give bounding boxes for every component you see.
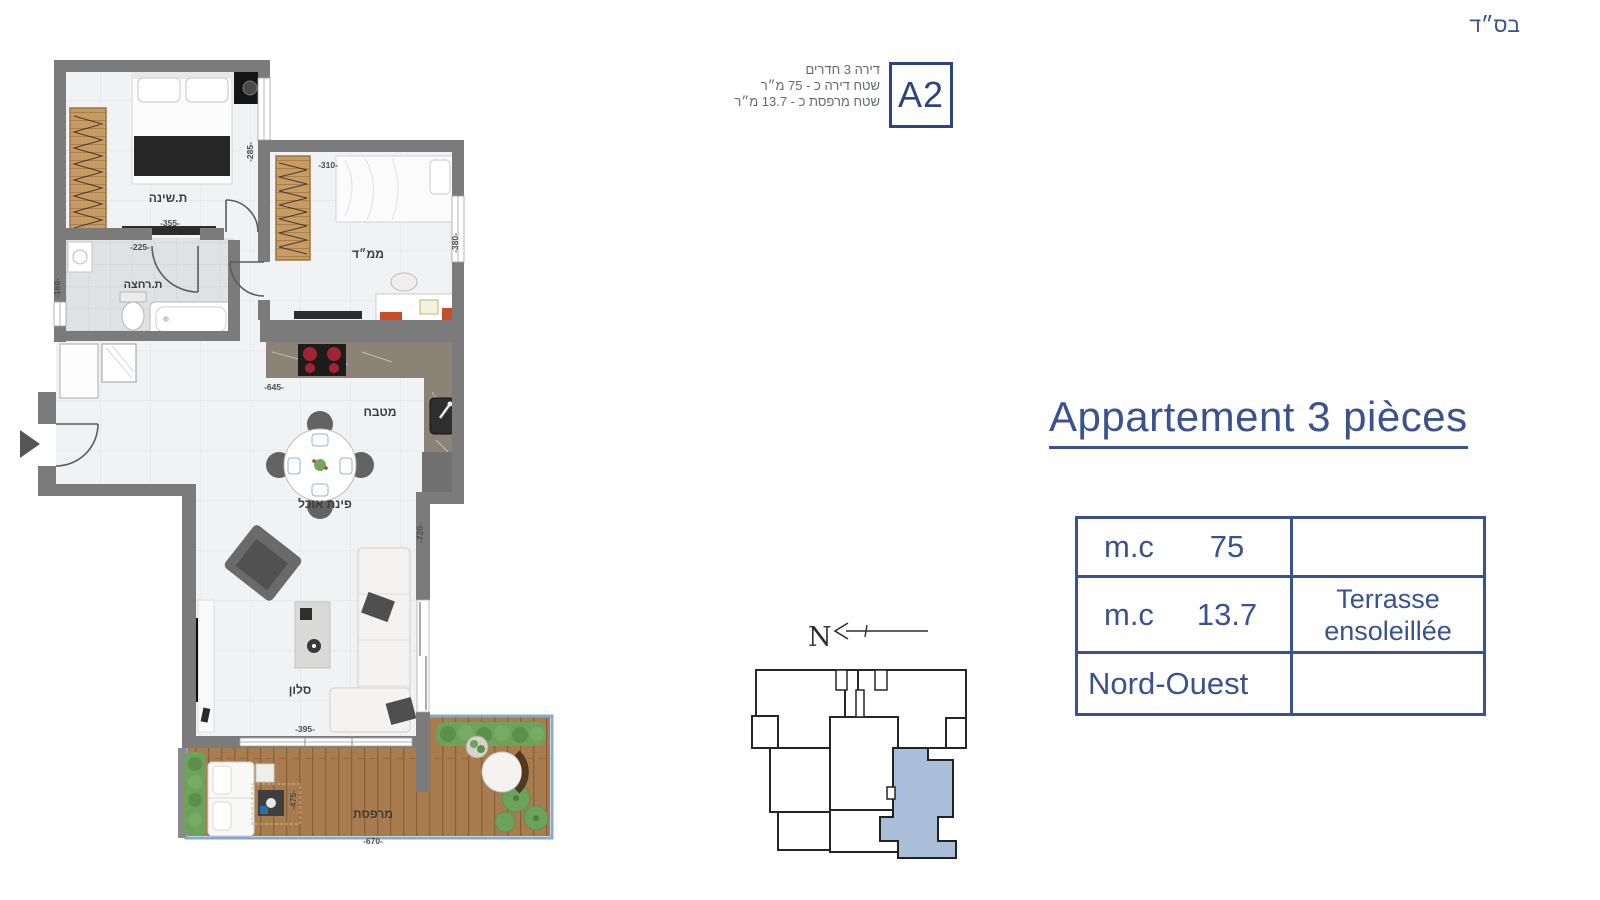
- north-arrow: N: [808, 622, 928, 653]
- floor-plan-drawing: ת.שינה ממ״ד ת.רחצה מטבח פינת אוכל סלון מ…: [0, 0, 1600, 900]
- floor-plan: ת.שינה ממ״ד ת.רחצה מטבח פינת אוכל סלון מ…: [20, 60, 552, 846]
- dim-bedroom-width: -355-: [160, 218, 180, 228]
- bathroom-vanity: [68, 242, 92, 272]
- dim-bathroom-height: -160-: [52, 278, 62, 298]
- dim-living-width: -395-: [295, 724, 315, 734]
- single-bed: [336, 156, 454, 222]
- brochure-page: בס״ד דירה 3 חדרים שטח דירה כ - 75 מ״ר שט…: [0, 0, 1600, 900]
- bedroom-wardrobe: [70, 108, 106, 236]
- hall-window: [54, 302, 66, 326]
- dim-kitchen-width: -645-: [264, 382, 284, 392]
- entry-arrow: [20, 430, 40, 458]
- room-label-mamad: ממ״ד: [352, 247, 384, 261]
- terrace-hedge-top: [436, 722, 546, 746]
- room-label-kitchen: מטבח: [363, 405, 396, 419]
- double-bed: [132, 70, 232, 184]
- dim-living-height: -720-: [415, 523, 425, 543]
- dim-mamad-height: -380-: [450, 233, 460, 253]
- cooktop: [298, 344, 346, 376]
- hall-niche: [60, 344, 98, 398]
- dim-terrace-height: -475-: [288, 790, 298, 810]
- hall-laundry-unit: [102, 344, 136, 382]
- key-plan: N: [752, 622, 966, 858]
- living-window-band: [240, 738, 412, 746]
- room-label-living: סלון: [289, 683, 311, 697]
- room-label-dining: פינת אוכל: [298, 497, 352, 511]
- bedroom-window: [258, 78, 270, 140]
- dim-terrace-width: -670-: [363, 836, 383, 846]
- terrace-planter-left: [184, 752, 206, 836]
- north-label: N: [808, 622, 832, 653]
- mamad-shelf: [294, 311, 362, 319]
- kitchen-sink: [430, 398, 454, 434]
- dim-mamad-width: -310-: [318, 160, 338, 170]
- room-label-bedroom: ת.שינה: [149, 191, 188, 205]
- terrace-glass-door: [417, 600, 429, 712]
- toilet: [120, 292, 146, 330]
- dim-bedroom-height: -285-: [245, 142, 255, 162]
- coffee-table: [295, 602, 330, 668]
- room-label-terrace: מרפסת: [353, 807, 393, 821]
- mamad-wardrobe: [276, 156, 310, 260]
- room-label-bathroom: ת.רחצה: [124, 279, 163, 291]
- dim-bathroom-width: -225-: [130, 242, 150, 252]
